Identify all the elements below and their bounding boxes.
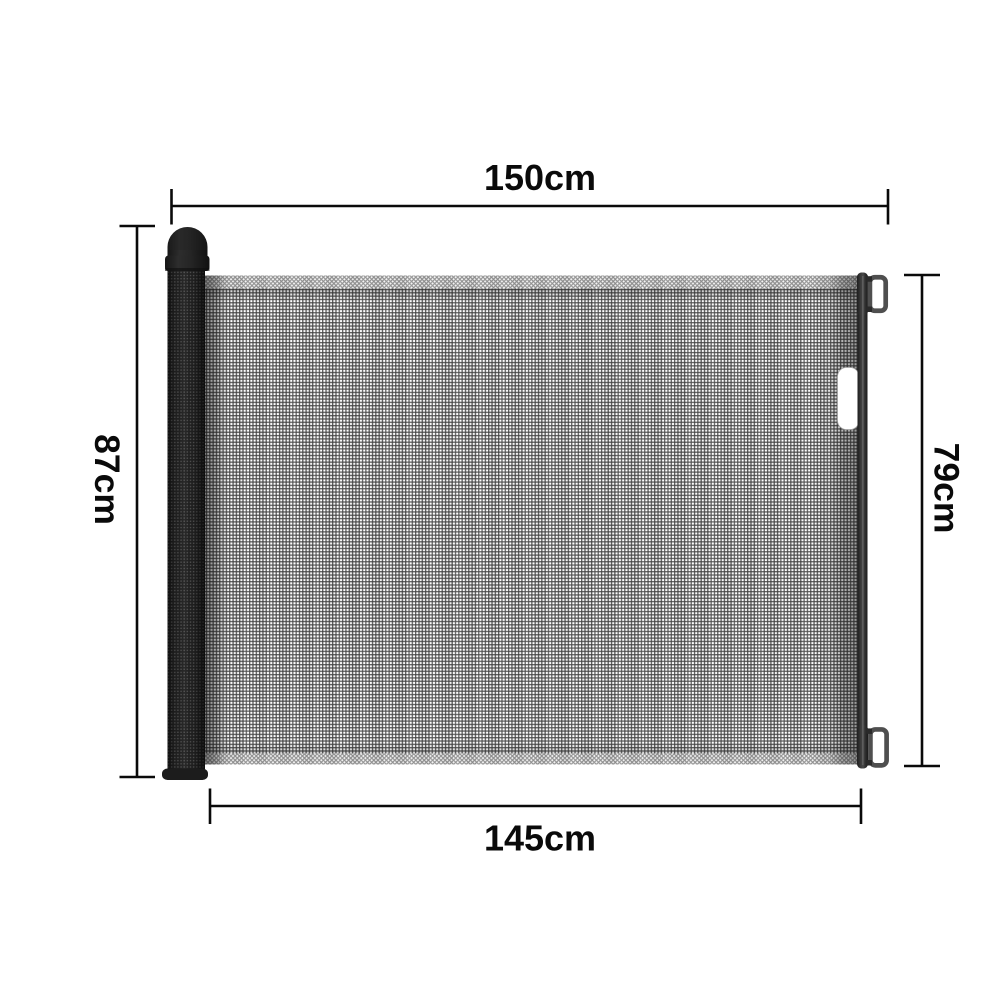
svg-text:79cm: 79cm: [927, 443, 967, 534]
svg-text:150cm: 150cm: [484, 157, 596, 198]
svg-text:145cm: 145cm: [484, 818, 596, 859]
svg-text:87cm: 87cm: [87, 434, 127, 525]
